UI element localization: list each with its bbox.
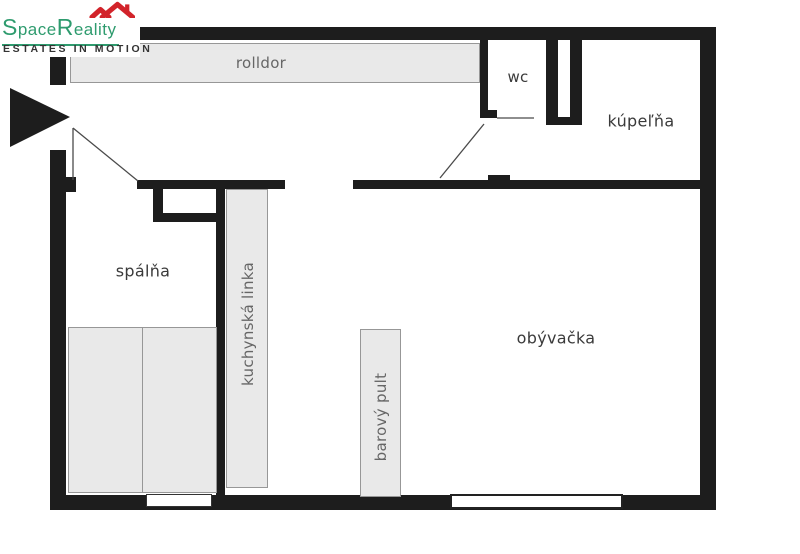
bed	[68, 327, 217, 493]
wall-right	[700, 27, 716, 510]
wall-wc-left-foot	[488, 110, 497, 118]
wall-top	[50, 27, 716, 40]
bedroom-label: spálňa	[116, 262, 171, 281]
wall-mid-right	[353, 180, 700, 189]
roller-wardrobe-label: rolldor	[236, 54, 286, 72]
wall-wc-bath-cap	[546, 117, 582, 125]
wall-left-foot	[66, 177, 76, 192]
living-room-label: obývačka	[517, 329, 596, 348]
wall-left-lower	[50, 150, 66, 510]
agency-logo: SpaceReality ESTATES IN MOTION	[0, 0, 140, 57]
kitchen-unit-label: kuchynská linka	[239, 262, 257, 386]
floor-plan: rolldor wc kúpeľňa spálňa obývačka kuchy…	[0, 0, 800, 554]
wc-label: wc	[507, 68, 528, 86]
wall-door-stop	[488, 175, 510, 180]
wall-mid-left	[137, 180, 285, 189]
living-room-window	[450, 494, 623, 509]
wall-wc-bath-1	[546, 40, 558, 118]
bedroom-window	[146, 494, 212, 507]
bathroom-label: kúpeľňa	[608, 112, 675, 131]
wall-wc-left	[480, 40, 488, 118]
wall-wc-bath-2	[570, 40, 582, 118]
bar-counter-label: barový pult	[372, 373, 390, 462]
entrance-arrow-icon	[10, 88, 70, 147]
logo-wordmark: SpaceReality	[2, 14, 119, 46]
wall-kitchen	[216, 189, 225, 495]
wall-niche-bottom	[153, 213, 225, 222]
logo-tagline: ESTATES IN MOTION	[3, 43, 152, 55]
bed-divider	[142, 328, 143, 492]
